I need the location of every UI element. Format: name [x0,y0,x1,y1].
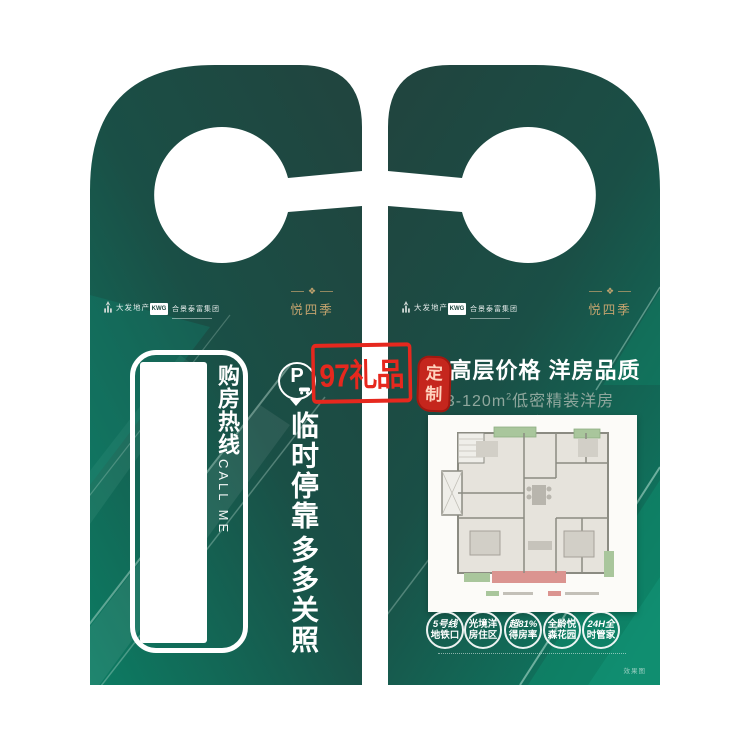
slogan-line2: 多多关照 [283,535,323,655]
pin-tail [290,399,302,406]
kwg-logo-box: KWG [150,303,168,315]
floorplan-drawing [436,423,629,604]
front-logo-row: 大发地产 KWG 合景泰富集团 ❖ 悦四季 [90,285,362,325]
diamond-icon: ❖ [606,287,614,296]
diamond-icon: ❖ [308,287,316,296]
watermark-badge: 97礼品 [311,342,412,404]
project-logo: ❖ 悦四季 [574,287,646,318]
hotline-label: 购房热线 [211,364,243,456]
area-line: 93-120m2低密精装洋房 [436,387,614,411]
back-logo-row: 大发地产 KWG 合景泰富集团 ❖ 悦四季 [388,285,660,325]
developer2-name: 合景泰富集团 [172,306,220,313]
project-name: 悦四季 [574,299,646,318]
car-icon [298,387,311,395]
feature-badge-ratio: 超81% 得房率 [504,611,542,649]
kwg-subline [172,318,212,319]
floorplan-card [428,415,637,612]
project-logo: ❖ 悦四季 [276,287,348,318]
feature-badge-butler: 24H全 时管家 [582,611,620,649]
parking-pin-icon: P [278,362,316,400]
developer-logo-kwg: KWG 合景泰富集团 [448,298,518,319]
developer2-name: 合景泰富集团 [470,306,518,313]
parking-letter: P [280,365,314,388]
developer1-name: 大发地产 [414,302,448,313]
building-icon [103,301,113,313]
feature-badge-community: 光境洋 房住区 [464,611,502,649]
feature-badge-garden: 全龄悦 森花园 [543,611,581,649]
feature-badge-metro: 5号线 地铁口 [426,611,464,649]
headline: 高层价格 洋房品质 [449,353,640,385]
hotline-sub-label: CALL ME [216,459,231,535]
developer1-name: 大发地产 [116,302,150,313]
door-hanger-mockup: 大发地产 KWG 合景泰富集团 ❖ 悦四季 购房热线 CALL ME [0,0,750,750]
project-ornament: ❖ [276,287,348,296]
building-icon [401,301,411,313]
slogan-line1: 临时停靠 [283,411,323,531]
headline-row: | 高层价格 洋房品质 [436,353,641,385]
developer-logo-kwg: KWG 合景泰富集团 [150,298,220,319]
project-name: 悦四季 [276,299,348,318]
render-note: 效果图 [624,665,647,675]
kwg-logo-box: KWG [448,303,466,315]
kwg-subline [470,318,510,319]
developer-logo-dafa: 大发地产 [401,301,448,313]
phone-write-area [140,362,207,643]
disclaimer-line [438,653,626,654]
custom-seal: 定 制 [416,355,452,412]
developer-logo-dafa: 大发地产 [103,301,150,313]
seal-char-1: 定 [426,362,444,384]
project-ornament: ❖ [574,287,646,296]
seal-char-2: 制 [425,384,443,406]
